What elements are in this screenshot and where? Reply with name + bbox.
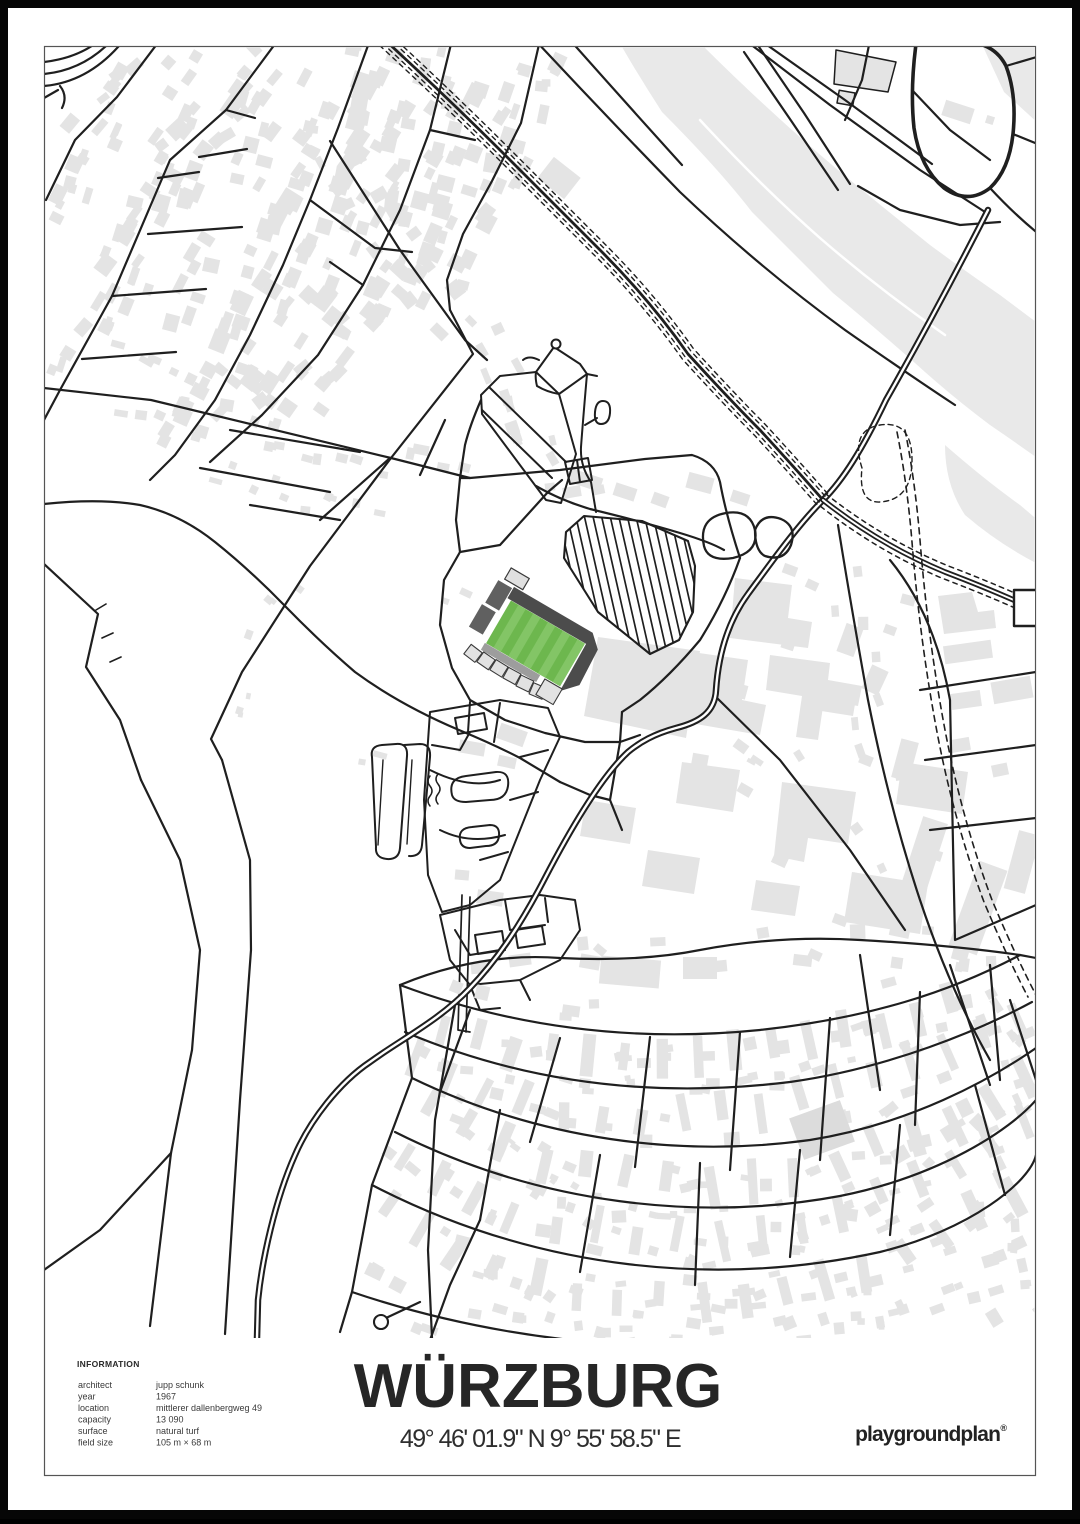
svg-text:year: year: [78, 1392, 96, 1402]
svg-text:location: location: [78, 1403, 109, 1413]
svg-text:architect: architect: [78, 1380, 113, 1390]
svg-text:capacity: capacity: [78, 1415, 112, 1425]
svg-text:®: ®: [1000, 1423, 1007, 1433]
svg-text:mittlerer dallenbergweg 49: mittlerer dallenbergweg 49: [156, 1403, 262, 1413]
svg-text:105 m × 68 m: 105 m × 68 m: [156, 1438, 211, 1448]
svg-text:jupp schunk: jupp schunk: [155, 1380, 205, 1390]
svg-text:surface: surface: [78, 1426, 108, 1436]
svg-text:INFORMATION: INFORMATION: [77, 1359, 140, 1369]
svg-text:natural turf: natural turf: [156, 1426, 200, 1436]
svg-text:1967: 1967: [156, 1392, 176, 1402]
svg-text:49° 46' 01.9" N 9° 55' 58.5" E: 49° 46' 01.9" N 9° 55' 58.5" E: [400, 1425, 681, 1453]
svg-text:playgroundplan: playgroundplan: [855, 1423, 1000, 1446]
svg-text:field size: field size: [78, 1438, 113, 1448]
svg-text:13 090: 13 090: [156, 1415, 184, 1425]
svg-text:WÜRZBURG: WÜRZBURG: [354, 1352, 723, 1421]
